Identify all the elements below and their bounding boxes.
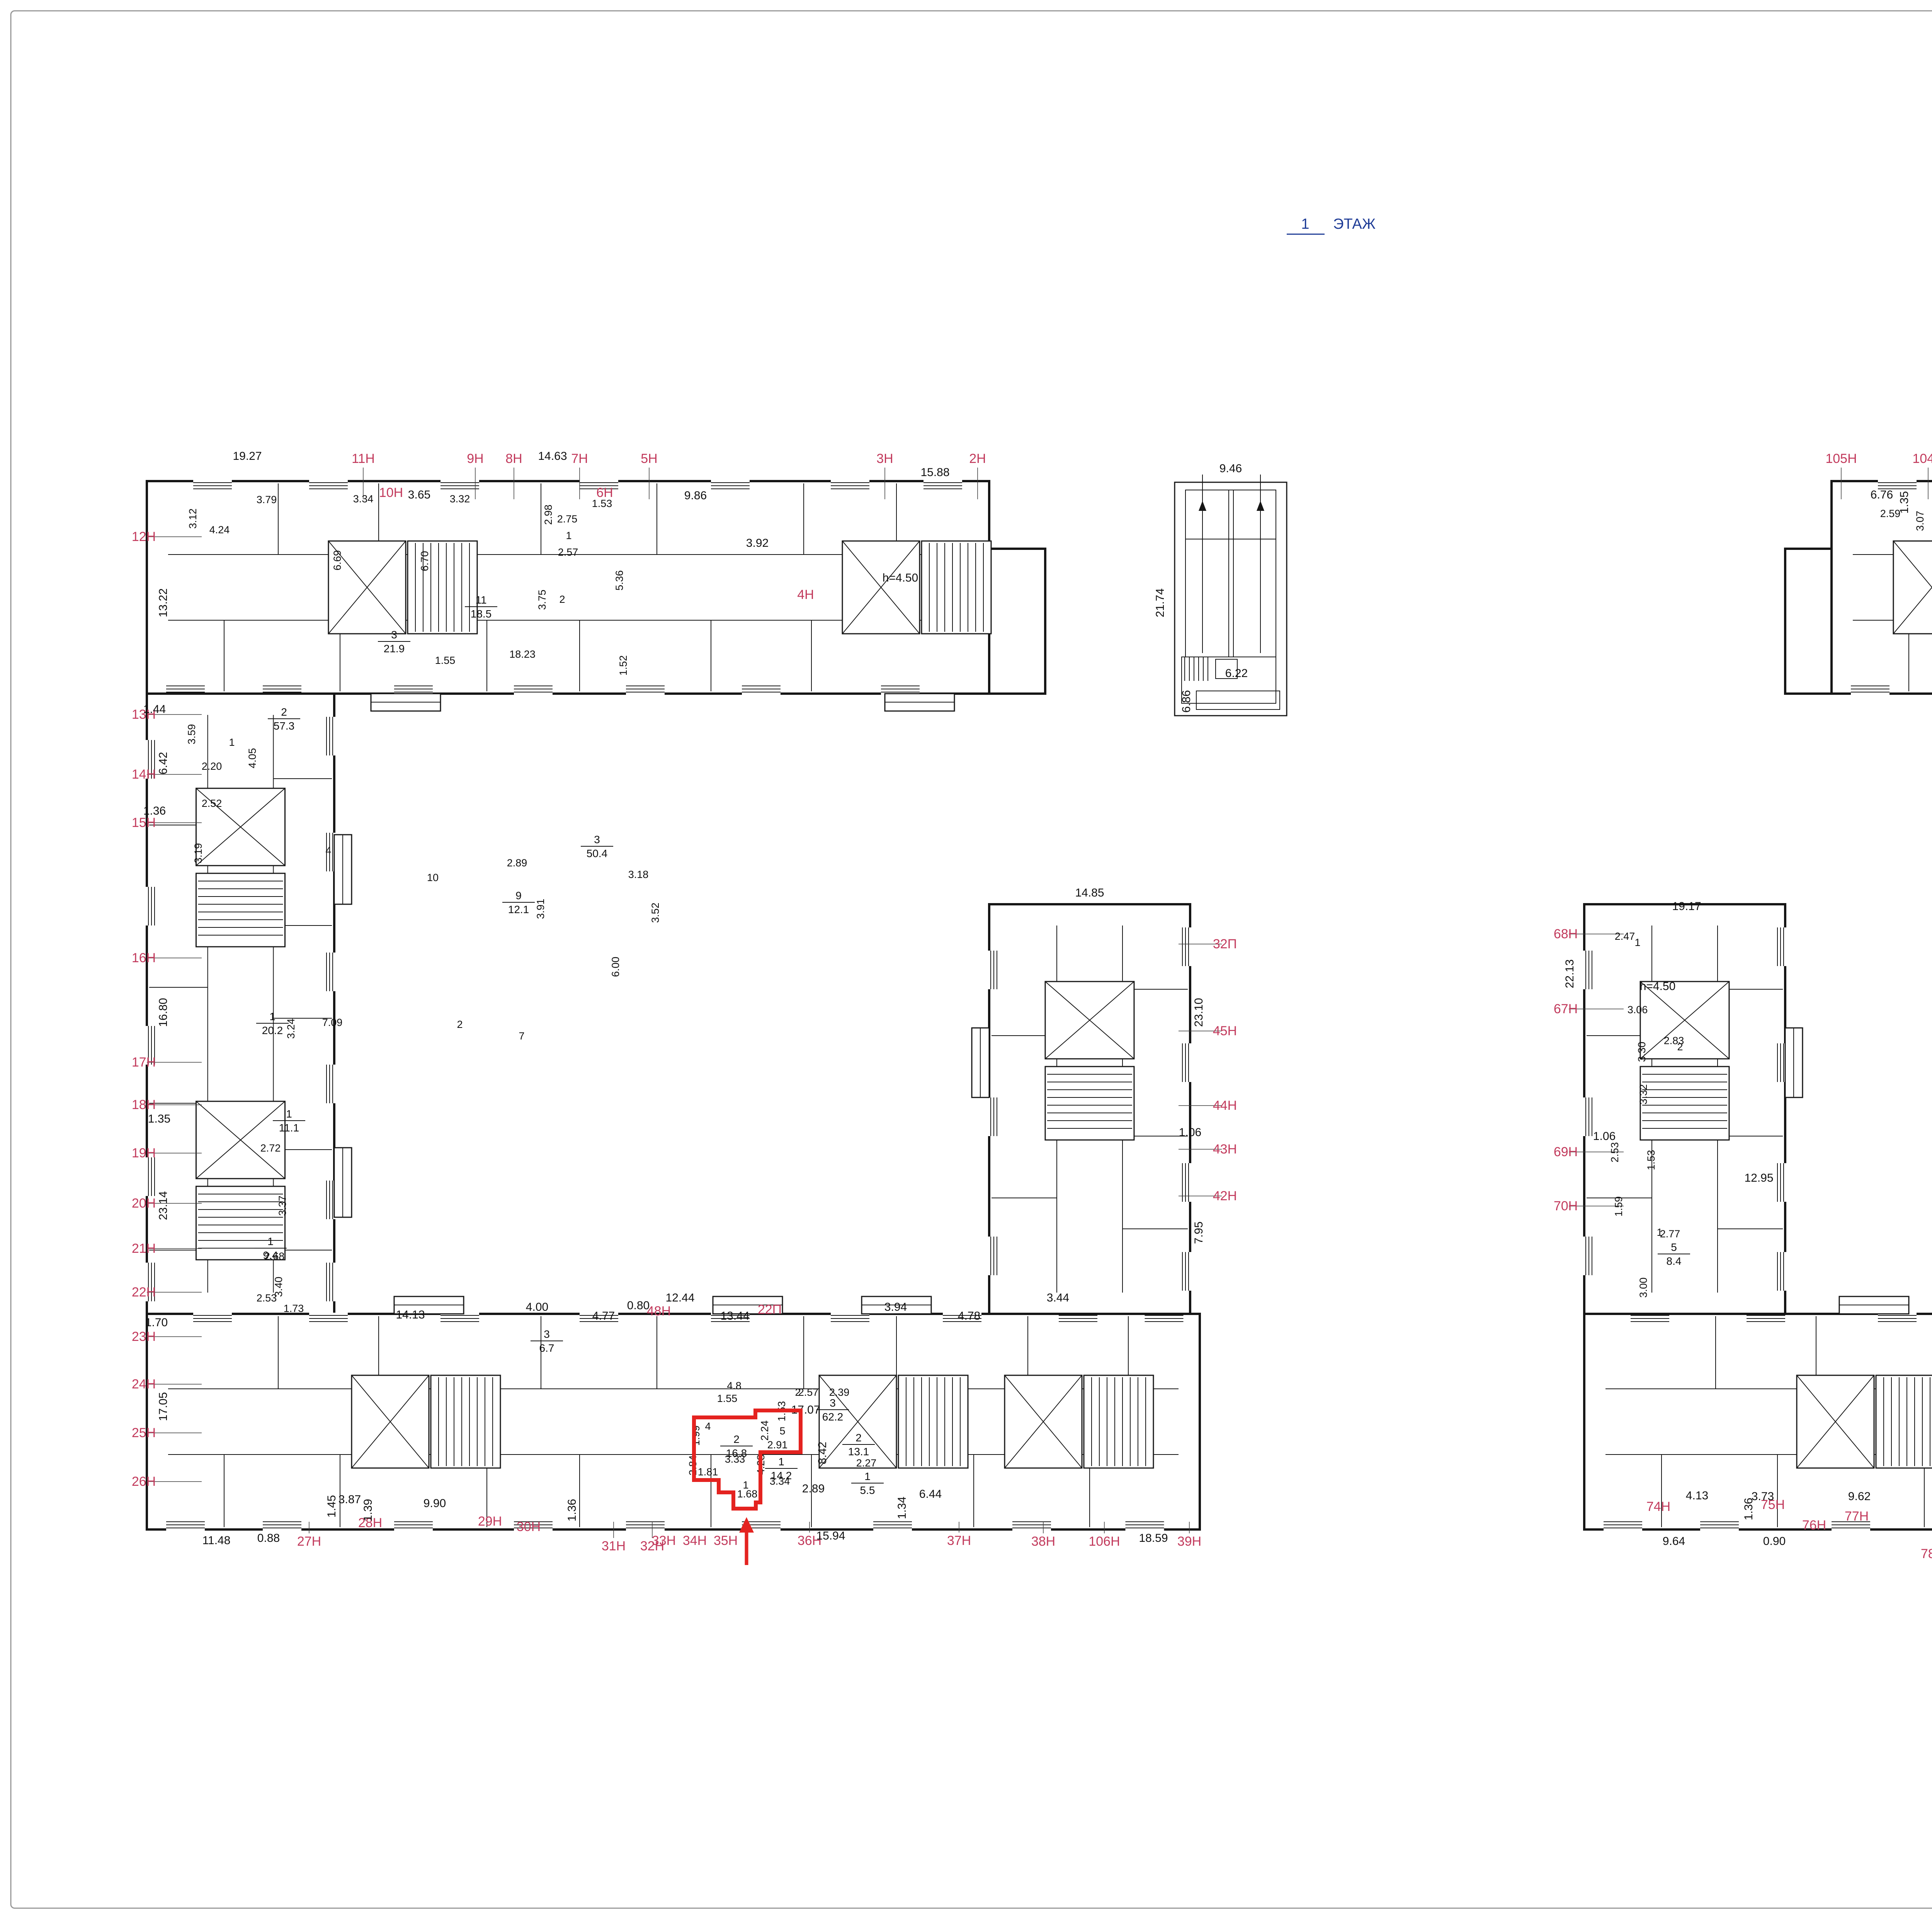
buildings-group [146, 480, 1932, 1531]
staircase-icon [1084, 1375, 1153, 1468]
ramp-shafts [1185, 490, 1276, 657]
room-number-text: 2 [855, 1432, 862, 1444]
interior-dim-text: 2.59 [1880, 508, 1901, 519]
interior-dim-text: 3.32 [450, 493, 470, 505]
interior-dim-text: 2.52 [202, 798, 222, 809]
dimension-text: 6.76 [1871, 488, 1893, 501]
room-area-text: 20.2 [262, 1024, 283, 1036]
room-number-text: 1 [267, 1235, 274, 1247]
building-wing [146, 694, 352, 1314]
unit-label-14Н: 14Н [132, 767, 156, 782]
unit-label-23Н: 23Н [132, 1329, 156, 1344]
dimension-text: h=4.50 [883, 572, 918, 584]
dimension-text: 23.14 [157, 1191, 170, 1220]
room-area-text: 11.1 [279, 1122, 299, 1134]
interior-dim-text: 1 [1634, 937, 1640, 948]
dimension-text: 0.90 [1763, 1535, 1786, 1548]
dimension-text: 0.80 [627, 1299, 650, 1312]
dimension-text: 1.44 [143, 703, 166, 716]
unit-label-7Н: 7Н [571, 451, 588, 466]
interior-dim-text: 2.20 [202, 760, 222, 772]
interior-dim-text: 2 [457, 1019, 463, 1030]
unit-label-48Н: 48Н [647, 1304, 671, 1318]
floor-title-word: ЭТАЖ [1333, 216, 1376, 232]
unit-label-44Н: 44Н [1213, 1098, 1237, 1113]
interior-dim-text: 4 [325, 845, 331, 856]
interior-dim-text: 2.75 [557, 513, 578, 525]
detail-dim-text: 9.46 [1219, 462, 1242, 475]
unit-label-37Н: 37Н [947, 1533, 971, 1548]
unit-label-104Н: 104Н [1912, 451, 1932, 466]
room-area-text: 8.4 [1667, 1255, 1682, 1267]
interior-dim-text: 4.24 [209, 524, 230, 536]
interior-dim-text: 2.24 [759, 1421, 770, 1441]
dimension-text: 9.62 [1848, 1490, 1871, 1503]
room-area-text: 21.9 [384, 643, 405, 655]
detail-corridor [1196, 691, 1280, 709]
dimension-text: 11.48 [202, 1534, 231, 1547]
staircase-icon [922, 541, 991, 634]
dimension-text: 9.64 [1663, 1535, 1685, 1548]
dimension-text: 14.13 [396, 1308, 425, 1321]
interior-dim-text: 5.36 [614, 570, 625, 591]
unit-label-22П: 22П [758, 1302, 782, 1317]
interior-dim-text: 2 [795, 1387, 801, 1398]
interior-dim-text: 3.59 [186, 724, 197, 745]
interior-dim-text: 1 [566, 530, 571, 541]
unit-label-77Н: 77Н [1845, 1509, 1869, 1524]
interior-dim-text: 1 [229, 737, 235, 748]
ramp-detail-outline [1175, 482, 1287, 716]
interior-dim-text: 2.53 [1609, 1142, 1621, 1163]
dimension-text: 16.80 [157, 998, 170, 1027]
unit-label-5Н: 5Н [641, 451, 657, 466]
interior-dim-text: 1.55 [435, 655, 456, 666]
unit-label-29Н: 29Н [478, 1514, 502, 1529]
interior-dim-text: 3.24 [285, 1019, 297, 1039]
interior-dim-text: 1.53 [592, 498, 612, 509]
unit-label-45Н: 45Н [1213, 1024, 1237, 1038]
dimension-text: 9.86 [684, 489, 707, 502]
interior-dim-text: 2.72 [260, 1142, 281, 1154]
unit-label-78Н: 78Н [1921, 1546, 1932, 1561]
interior-dim-text: 3.34 [770, 1475, 790, 1487]
unit-label-76Н: 76Н [1802, 1518, 1826, 1533]
unit-label-2Н: 2Н [969, 451, 986, 466]
dimension-text: 8.42 [816, 1442, 829, 1464]
room-area-text: 57.3 [274, 720, 295, 732]
interior-dim-text: 3.91 [535, 899, 546, 919]
dimension-text: 0.88 [257, 1532, 280, 1545]
interior-dim-text: 1 [1656, 1227, 1662, 1238]
interior-dim-text: 3.12 [187, 509, 199, 529]
room-area-text: 12.1 [508, 903, 529, 915]
interior-dim-text: 6.70 [419, 551, 430, 572]
interior-dim-text: 7.09 [322, 1017, 343, 1028]
staircase-icon [1045, 1067, 1134, 1140]
dimension-text: 9.90 [423, 1497, 446, 1510]
dimension-text: 1.06 [1179, 1126, 1201, 1139]
dimension-text: 3.65 [408, 488, 430, 501]
interior-dim-text: 5 [779, 1425, 785, 1437]
room-number-text: 9 [515, 890, 522, 902]
room-number-text: 3 [544, 1328, 550, 1340]
interior-dim-text: 3.37 [277, 1196, 288, 1216]
interior-dim-text: 10 [427, 872, 439, 883]
interior-dim-text: 3.34 [353, 493, 374, 505]
detail-dim-text: 6.86 [1180, 690, 1193, 713]
interior-dim-text: 1.55 [717, 1393, 738, 1404]
unit-label-8Н: 8Н [505, 451, 522, 466]
dimension-text: 15.94 [816, 1529, 845, 1542]
building-wing [1583, 904, 1803, 1314]
unit-label-11Н: 11Н [352, 451, 375, 466]
unit-label-19Н: 19Н [132, 1146, 156, 1160]
interior-dim-text: 2.57 [558, 546, 578, 558]
interior-dim-text: 1.73 [284, 1303, 304, 1314]
room-number-text: 1 [864, 1470, 871, 1482]
room-number-text: 3 [830, 1397, 836, 1409]
interior-dim-text: 2.57 [798, 1387, 819, 1398]
unit-label-18Н: 18Н [132, 1097, 156, 1112]
interior-dim-text: 2.39 [829, 1387, 850, 1398]
building-wing-outline [989, 549, 1045, 694]
dimension-text: 15.88 [920, 466, 949, 479]
interior-dim-text: 7 [519, 1030, 524, 1042]
dimension-text: 6.44 [919, 1488, 942, 1500]
interior-dim-text: 1.81 [698, 1466, 718, 1478]
unit-label-22Н: 22Н [132, 1285, 156, 1300]
unit-label-25Н: 25Н [132, 1426, 156, 1440]
dimension-text: 19.17 [1672, 900, 1701, 913]
interior-dim-text: 3.75 [536, 590, 548, 610]
unit-label-21Н: 21Н [132, 1241, 156, 1256]
interior-dim-text: 3.07 [1914, 511, 1926, 531]
interior-dim-text: 3.06 [1628, 1004, 1648, 1016]
unit-label-42Н: 42Н [1213, 1189, 1237, 1203]
unit-label-24Н: 24Н [132, 1377, 156, 1392]
staircase-icon [1640, 1067, 1729, 1140]
dimension-text: 13.44 [720, 1310, 749, 1322]
interior-dim-text: 2.68 [264, 1250, 285, 1262]
interior-dim-text: 1 [743, 1479, 748, 1491]
floor-title-number: 1 [1301, 216, 1309, 232]
interior-dim-text: 4.05 [247, 748, 258, 769]
staircase-icon [196, 873, 285, 947]
dimension-text: 23.10 [1192, 998, 1205, 1027]
unit-label-35Н: 35Н [714, 1533, 738, 1548]
room-area-text: 5.5 [860, 1484, 875, 1496]
building-wing-outline [1785, 549, 1832, 694]
staircase-icon [431, 1375, 500, 1468]
building-wing [1785, 480, 1932, 711]
room-area-text: 50.4 [587, 847, 608, 859]
dimension-text: 1.34 [896, 1497, 908, 1519]
room-number-text: 1 [269, 1011, 276, 1022]
room-number-text: 1 [778, 1456, 784, 1468]
dimension-text: 18.59 [1139, 1532, 1168, 1545]
dimension-text: 1.36 [1742, 1498, 1755, 1520]
interior-dim-text: 3.30 [1636, 1042, 1648, 1062]
unit-label-34Н: 34Н [683, 1533, 707, 1548]
interior-dim-text: 3.52 [650, 903, 661, 923]
dimension-text: 3.87 [338, 1493, 361, 1506]
unit-label-69Н: 69Н [1554, 1145, 1578, 1159]
dimension-text: 1.36 [566, 1499, 578, 1521]
room-area-text: 13.1 [848, 1446, 869, 1458]
unit-label-3Н: 3Н [876, 451, 893, 466]
unit-label-33Н: 33Н [652, 1533, 676, 1548]
dimension-text: 12.95 [1744, 1172, 1773, 1184]
staircase-icon [408, 541, 477, 634]
room-number-text: 5 [1671, 1241, 1677, 1253]
unit-label-17Н: 17Н [132, 1055, 156, 1070]
unit-label-67Н: 67Н [1554, 1002, 1578, 1016]
drawing-sheet: 9.4621.746.226.86 11Н10Н9Н8Н7Н6Н5Н4Н3Н2Н… [0, 0, 1932, 1919]
unit-label-30Н: 30Н [517, 1519, 541, 1534]
unit-label-10Н: 10Н [379, 485, 403, 500]
dimension-text: 3.44 [1047, 1291, 1069, 1304]
unit-label-39Н: 39Н [1177, 1534, 1201, 1549]
unit-label-105Н: 105Н [1825, 451, 1857, 466]
staircase-icon [196, 1186, 285, 1260]
unit-label-43Н: 43Н [1213, 1142, 1237, 1157]
interior-dim-text: 6.00 [610, 957, 621, 977]
detail-dim-text: 6.22 [1225, 667, 1248, 680]
unit-label-12Н: 12Н [132, 529, 156, 544]
unit-label-70Н: 70Н [1554, 1199, 1578, 1213]
ramp-detail-group: 9.4621.746.226.86 [1154, 462, 1287, 716]
interior-dim-text: 2 [559, 594, 565, 605]
dimension-text: 4.00 [526, 1301, 548, 1313]
dimension-text: 3.92 [746, 537, 769, 550]
dimension-text: 17.05 [157, 1392, 170, 1421]
interior-dim-text: 6.69 [332, 550, 343, 571]
dimension-text: 19.27 [233, 450, 262, 463]
staircase-icon [1876, 1375, 1932, 1468]
room-number-text: 11 [475, 594, 486, 606]
building-wing [972, 904, 1191, 1314]
detail-dim-text: 21.74 [1154, 588, 1167, 617]
building-wing [147, 1296, 1200, 1531]
unit-label-20Н: 20Н [132, 1196, 156, 1211]
dimension-text: 6.42 [157, 752, 170, 774]
interior-dim-text: 2.91 [767, 1439, 788, 1451]
dimension-text: 14.85 [1075, 886, 1104, 899]
interior-dim-text: 2.77 [1660, 1228, 1680, 1240]
interior-dim-text: 3.32 [1638, 1084, 1649, 1105]
interior-dim-text: 4 [705, 1421, 711, 1432]
interior-dim-text: 2.27 [856, 1457, 877, 1469]
unit-label-106Н: 106Н [1088, 1534, 1120, 1549]
dimension-text: 2.89 [802, 1482, 825, 1495]
dimension-text: 12.44 [665, 1291, 694, 1304]
unit-label-31Н: 31Н [602, 1539, 626, 1553]
interior-dim-text: 3.33 [725, 1453, 745, 1465]
dimension-text: 1.36 [143, 805, 166, 817]
dimension-text: 14.63 [538, 450, 567, 463]
interior-dim-text: 3.18 [628, 869, 649, 880]
unit-label-32П: 32П [1213, 937, 1237, 951]
dimension-text: 4.77 [592, 1310, 615, 1322]
interior-dim-text: 1.53 [1645, 1150, 1657, 1170]
interior-dim-text: 2.89 [507, 857, 527, 869]
floorplan-canvas: 9.4621.746.226.86 11Н10Н9Н8Н7Н6Н5Н4Н3Н2Н… [0, 0, 1932, 1919]
room-number-text: 2 [281, 706, 287, 718]
elevator-shaft-icon [1893, 541, 1932, 634]
dimension-text: 1.70 [145, 1316, 168, 1329]
interior-dim-text: 3.79 [257, 494, 277, 505]
unit-label-38Н: 38Н [1031, 1534, 1055, 1549]
interior-dim-text: 2.47 [1615, 931, 1635, 942]
dimension-text: 13.22 [157, 588, 170, 617]
room-area-text: 18.5 [471, 608, 492, 620]
unit-label-9Н: 9Н [467, 451, 483, 466]
interior-dim-text: 3.00 [1638, 1278, 1649, 1298]
interior-dim-text: 1.52 [617, 655, 629, 676]
dimension-text: 1.06 [1593, 1130, 1616, 1143]
unit-label-16Н: 16Н [132, 951, 156, 965]
dimension-text: 3.94 [884, 1301, 907, 1313]
dimension-text: 7.95 [1192, 1221, 1205, 1244]
room-number-text: 1 [286, 1108, 292, 1120]
unit-label-68Н: 68Н [1554, 927, 1578, 941]
interior-dim-text: 3.19 [192, 843, 204, 864]
dimension-text: 22.13 [1563, 959, 1576, 988]
dimension-text: 1.45 [325, 1495, 338, 1518]
dimension-text: 1.35 [148, 1113, 170, 1125]
room-number-text: 3 [391, 629, 397, 641]
staircase-icon [898, 1375, 968, 1468]
room-number-text: 2 [733, 1433, 740, 1445]
interior-dim-text: 2 [1677, 1041, 1683, 1053]
unit-label-4Н: 4Н [797, 587, 814, 602]
room-number-text: 3 [594, 834, 600, 846]
unit-label-26Н: 26Н [132, 1474, 156, 1489]
dimension-text: h=4.50 [1640, 980, 1676, 993]
dimension-text: 4.13 [1686, 1489, 1708, 1502]
room-area-text: 62.2 [822, 1411, 844, 1423]
interior-dim-text: 18.23 [509, 648, 536, 660]
floor-title: 1 ЭТАЖ [1287, 216, 1376, 234]
detail-stair-zone [1182, 657, 1276, 703]
building-wing [147, 480, 1045, 711]
interior-dim-text: 4.8 [727, 1380, 742, 1392]
interior-dim-text: 2.98 [543, 505, 554, 525]
interior-dim-text: 1.59 [1613, 1196, 1624, 1217]
dimension-text: 1.39 [362, 1499, 374, 1521]
dimension-text: 4.78 [958, 1310, 980, 1322]
unit-label-27Н: 27Н [297, 1534, 321, 1549]
unit-label-15Н: 15Н [132, 815, 156, 830]
unit-label-74Н: 74Н [1646, 1499, 1670, 1514]
interior-dim-text: 2.53 [257, 1292, 277, 1304]
room-area-text: 6.7 [539, 1342, 554, 1354]
